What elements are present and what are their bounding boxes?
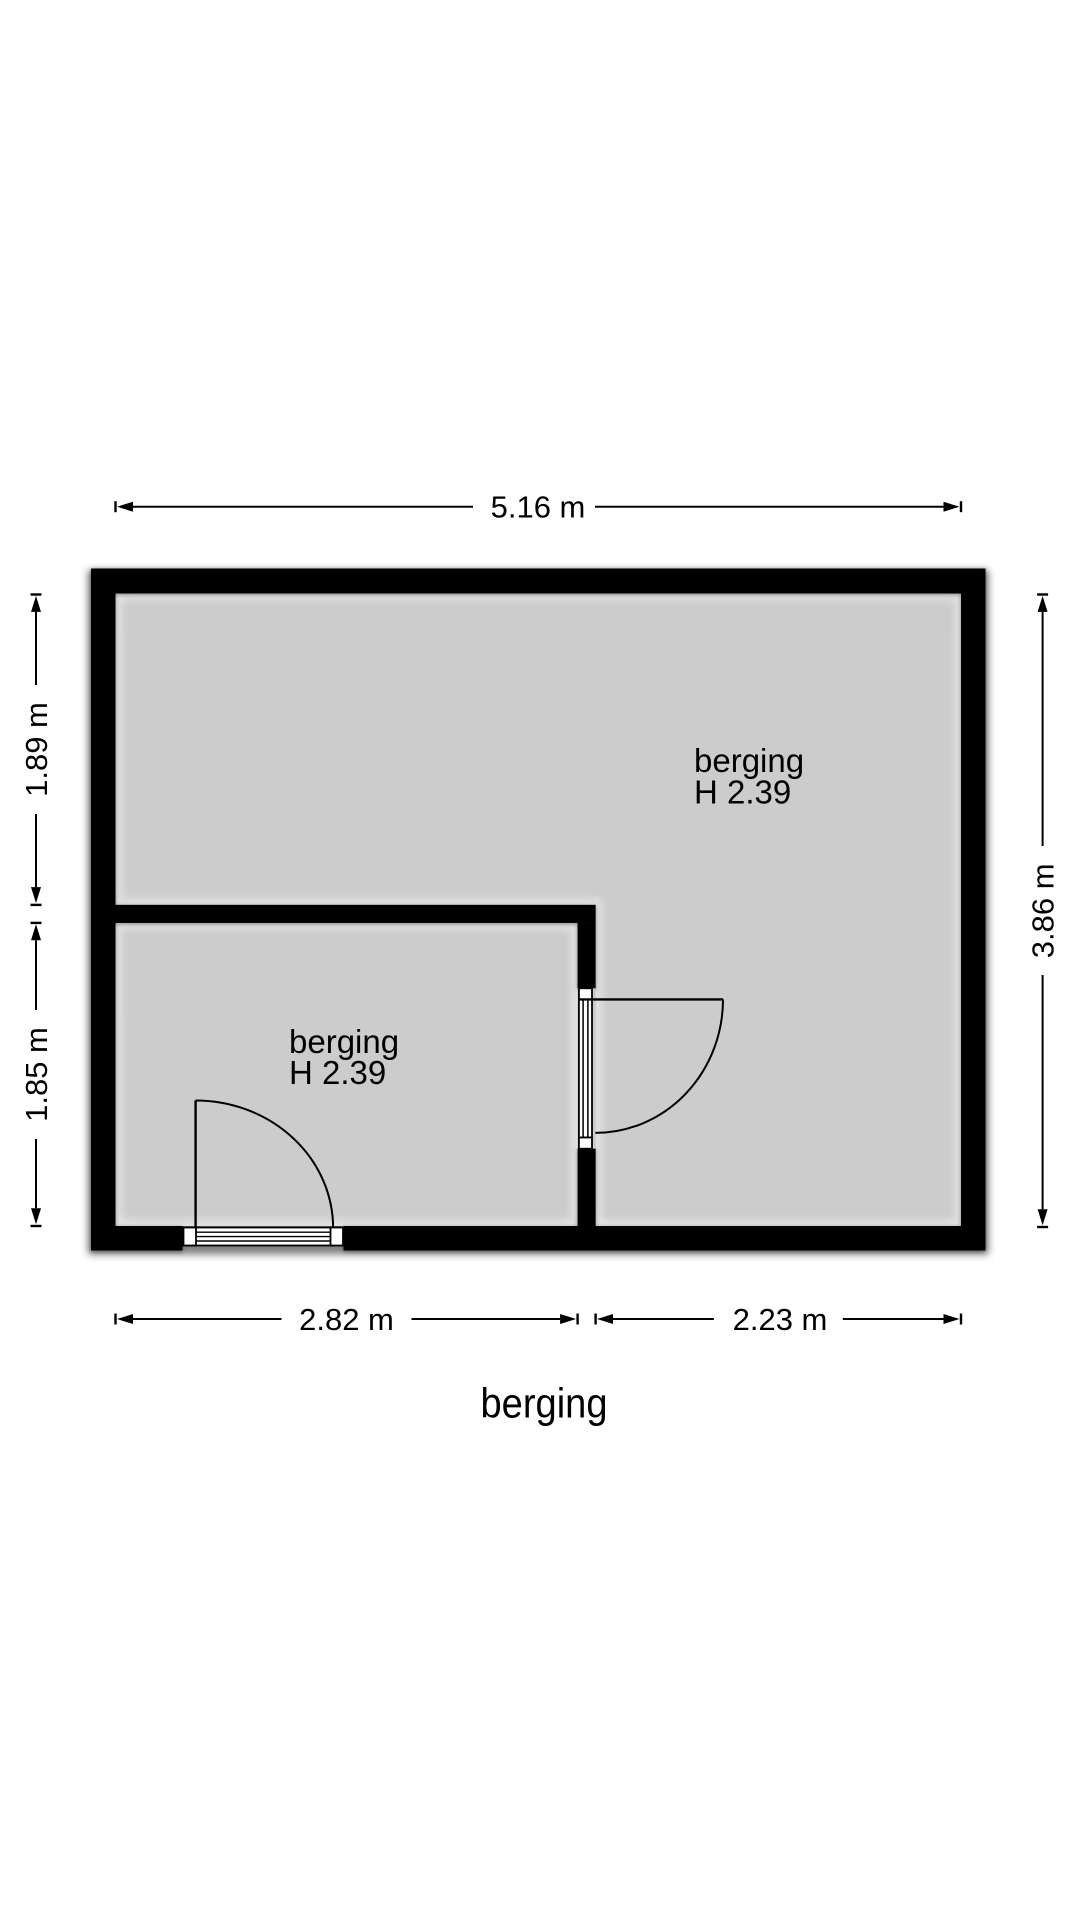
svg-text:2.23 m: 2.23 m <box>733 1302 828 1337</box>
svg-text:2.82 m: 2.82 m <box>299 1302 394 1337</box>
svg-text:berging: berging <box>481 1380 608 1427</box>
svg-text:1.89 m: 1.89 m <box>19 702 54 797</box>
svg-text:H 2.39: H 2.39 <box>289 1054 386 1091</box>
svg-text:3.86 m: 3.86 m <box>1026 863 1061 958</box>
svg-text:5.16 m: 5.16 m <box>491 490 586 525</box>
svg-text:1.85 m: 1.85 m <box>19 1027 54 1122</box>
svg-text:H 2.39: H 2.39 <box>694 774 791 811</box>
